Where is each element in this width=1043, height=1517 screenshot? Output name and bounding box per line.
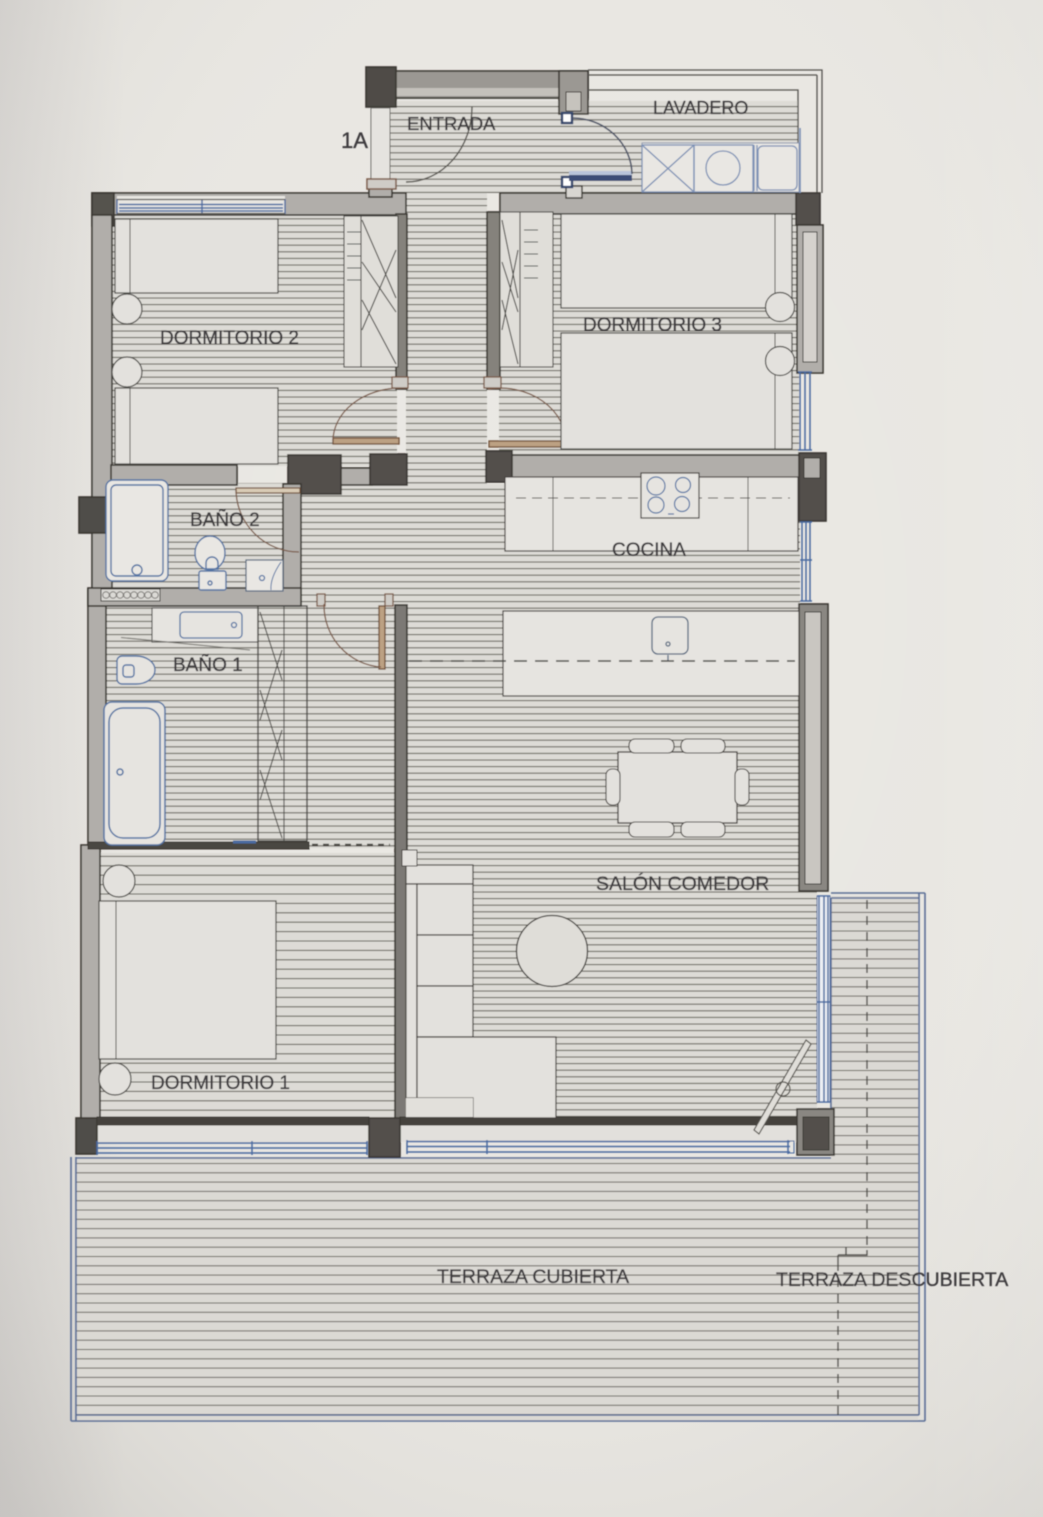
svg-text:TERRAZA CUBIERTA: TERRAZA CUBIERTA — [437, 1266, 629, 1288]
svg-text:1A: 1A — [341, 128, 368, 153]
svg-text:BAÑO 2: BAÑO 2 — [190, 509, 260, 531]
svg-text:DORMITORIO 3: DORMITORIO 3 — [583, 315, 722, 336]
svg-text:TERRAZA DESCUBIERTA: TERRAZA DESCUBIERTA — [776, 1269, 1008, 1291]
svg-text:COCINA: COCINA — [612, 540, 686, 561]
svg-text:SALÓN COMEDOR: SALÓN COMEDOR — [596, 872, 769, 895]
svg-text:DORMITORIO 2: DORMITORIO 2 — [160, 328, 299, 349]
svg-text:DORMITORIO 1: DORMITORIO 1 — [151, 1073, 290, 1094]
svg-text:LAVADERO: LAVADERO — [653, 98, 748, 118]
svg-text:BAÑO 1: BAÑO 1 — [173, 654, 243, 676]
svg-text:ENTRADA: ENTRADA — [407, 113, 496, 134]
